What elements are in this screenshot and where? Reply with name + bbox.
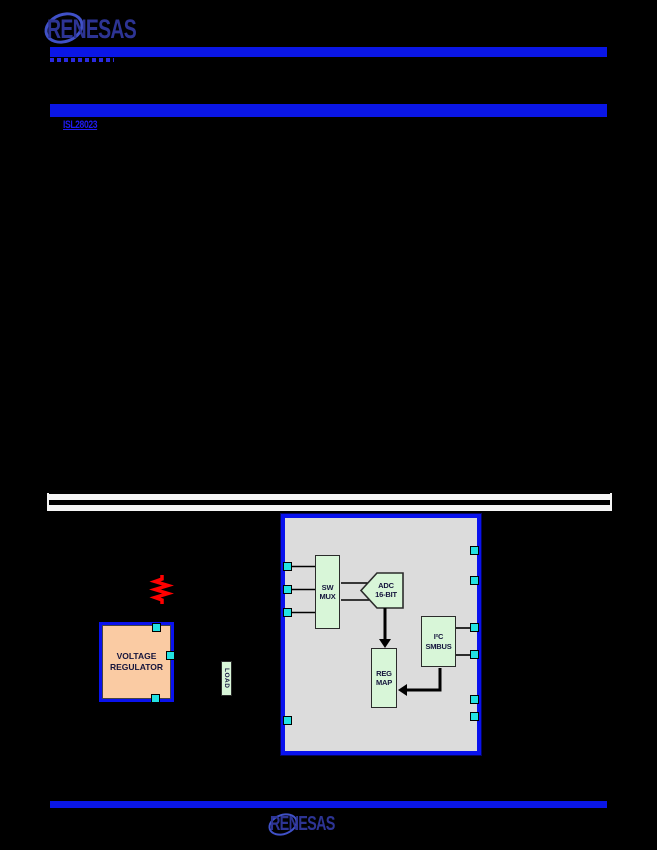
- ic-pin: [283, 608, 292, 617]
- ic-pin: [470, 546, 479, 555]
- reg-map-block: REG MAP: [371, 648, 397, 708]
- regulator-pin: [151, 694, 160, 703]
- adc-label: ADC 16-BIT: [375, 581, 397, 600]
- sense-resistor-icon: [155, 575, 168, 604]
- regulator-pin: [166, 651, 175, 660]
- ic-pin: [470, 650, 479, 659]
- voltage-regulator-label: VOLTAGE REGULATOR: [110, 651, 163, 673]
- ic-pin: [470, 695, 479, 704]
- reg-map-label: REG MAP: [376, 669, 392, 688]
- sw-mux-block: SW MUX: [315, 555, 340, 629]
- voltage-regulator-block: VOLTAGE REGULATOR: [99, 622, 174, 702]
- ic-pin: [470, 623, 479, 632]
- renesas-logo-footer: RENESAS: [270, 813, 335, 836]
- adc-label-wrap: ADC 16-BIT: [368, 577, 404, 603]
- i2c-smbus-block: I²C SMBUS: [421, 616, 456, 667]
- datasheet-page: RENESAS ISL28023 VOLTAGE REGULATOR LOAD: [0, 0, 657, 850]
- ic-pin: [470, 712, 479, 721]
- ic-pin: [283, 562, 292, 571]
- ic-pin: [283, 716, 292, 725]
- typical-application-diagram: VOLTAGE REGULATOR LOAD: [0, 0, 657, 850]
- ic-pin: [470, 576, 479, 585]
- sw-mux-label: SW MUX: [319, 583, 335, 602]
- i2c-smbus-label: I²C SMBUS: [425, 632, 451, 651]
- ic-pin: [283, 585, 292, 594]
- footer-rule: [50, 801, 607, 808]
- regulator-pin: [152, 623, 161, 632]
- load-label: LOAD: [223, 668, 230, 688]
- load-block: LOAD: [221, 661, 232, 696]
